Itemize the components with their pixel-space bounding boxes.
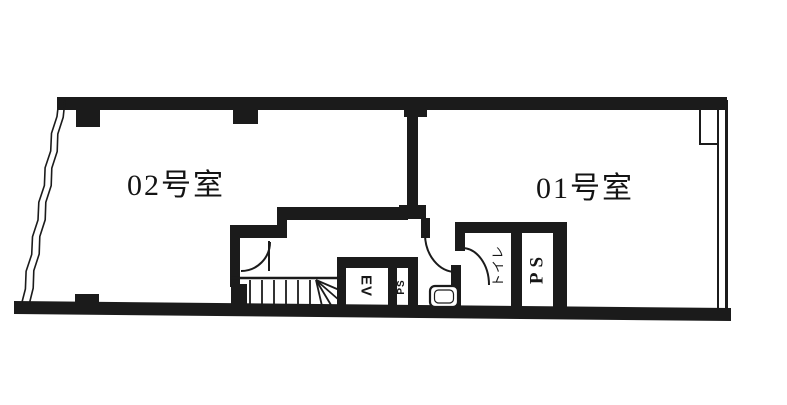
room-02-label: 02号室 xyxy=(127,171,225,201)
toilet-ps-divider-wall xyxy=(511,222,522,315)
column-top-left xyxy=(76,100,100,127)
floorplan-canvas: 02号室 01号室 EV PS トイレ PS xyxy=(0,0,787,405)
elevator-top-wall xyxy=(337,257,418,268)
top-wall xyxy=(57,97,727,110)
ps-right-wall xyxy=(408,257,418,316)
washbasin xyxy=(430,286,458,307)
toilet-label: トイレ xyxy=(492,245,505,287)
right-wall xyxy=(700,100,727,319)
pipe-space-label: PS xyxy=(528,252,547,284)
room02-door-arc xyxy=(241,242,270,271)
elevator-left-wall xyxy=(337,257,346,316)
corner-duct-box xyxy=(700,110,718,144)
left-slanted-wall xyxy=(21,99,65,306)
ps-outer-right-wall xyxy=(553,222,567,314)
left-wall-inner-line xyxy=(29,100,65,305)
staircase xyxy=(231,278,344,307)
toilet-door-arc xyxy=(462,248,489,285)
partition-wall xyxy=(407,97,418,209)
floorplan-drawing xyxy=(0,0,787,405)
left-wall-outer-line xyxy=(21,99,59,306)
elevator-label: EV xyxy=(359,275,374,297)
hall-top-wall xyxy=(277,207,408,220)
column-top-mid xyxy=(233,100,258,124)
column-bottom-left xyxy=(75,294,99,310)
stair-end-block xyxy=(231,284,247,310)
pipe-space-small-label: PS xyxy=(397,279,407,294)
bottom-wall xyxy=(14,301,731,321)
room-01-label: 01号室 xyxy=(536,174,634,204)
